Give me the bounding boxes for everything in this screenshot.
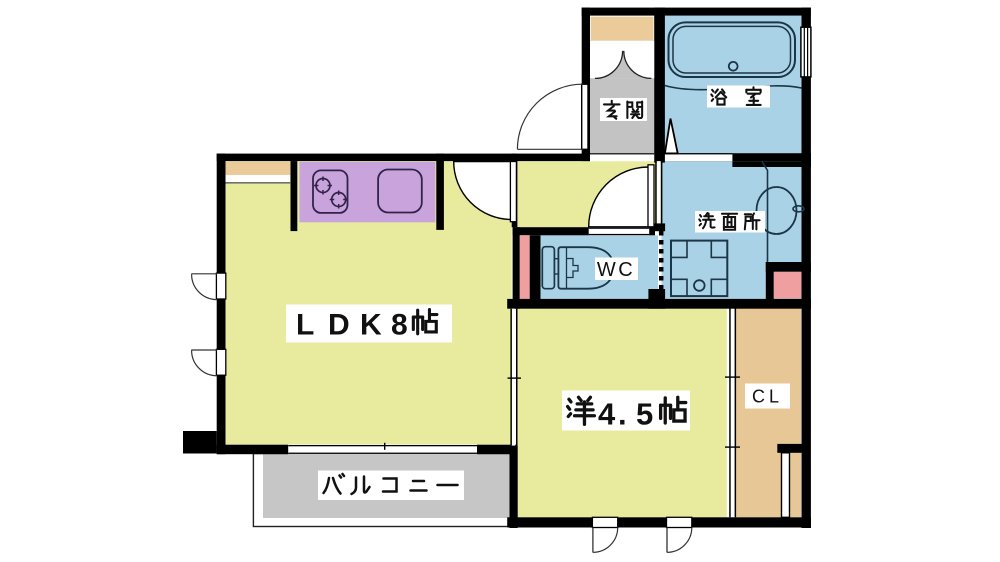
svg-text:.: . [618,397,627,432]
svg-text:WC: WC [597,259,635,281]
svg-text:5: 5 [636,397,653,432]
svg-text:L: L [296,309,314,342]
svg-text:D: D [328,309,350,342]
svg-text:K: K [360,309,382,342]
svg-text:8: 8 [391,309,408,342]
svg-text:CL: CL [752,387,783,407]
svg-text:4: 4 [598,397,616,432]
